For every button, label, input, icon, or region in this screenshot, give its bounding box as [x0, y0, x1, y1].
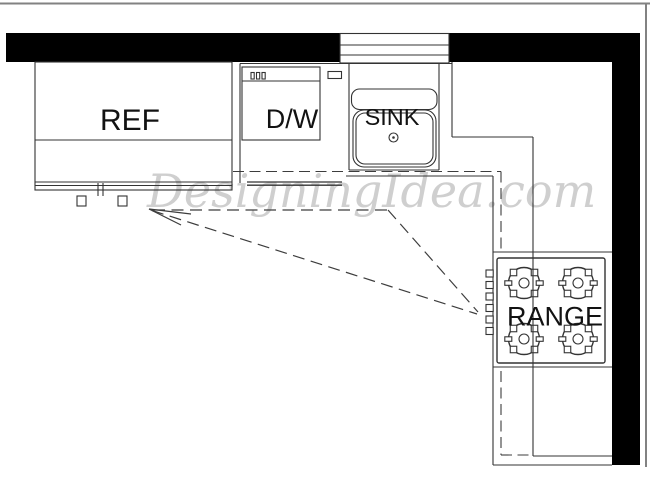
sink: SINK	[349, 64, 439, 171]
triangle-leg-diagonal	[152, 211, 477, 315]
window-frame	[340, 34, 449, 64]
counter-control-box	[328, 72, 342, 79]
wall-top-left	[6, 33, 340, 62]
window	[340, 34, 449, 64]
ref-label: REF	[100, 104, 160, 137]
range-knob	[486, 270, 493, 277]
sink-drain-dot	[392, 136, 395, 139]
wall-right	[612, 33, 640, 465]
wall-top-right	[449, 33, 640, 62]
range-knob	[486, 305, 493, 312]
floor-plan-svg: DesigningIdea.com REF D/W	[0, 0, 650, 480]
range-knob	[486, 282, 493, 289]
ref-handle	[118, 196, 127, 206]
triangle-leg-to-range	[388, 210, 478, 312]
range-label: RANGE	[507, 302, 603, 332]
dw-button	[257, 73, 260, 80]
work-triangle	[149, 209, 478, 314]
dw-button	[251, 73, 254, 80]
dw-button	[262, 73, 265, 80]
range-knob	[486, 328, 493, 335]
ref-handle	[77, 196, 86, 206]
range-knob	[486, 293, 493, 300]
burner-top-left	[505, 268, 543, 299]
kitchen-floor-plan: DesigningIdea.com REF D/W	[0, 0, 650, 480]
dw-label: D/W	[266, 104, 319, 134]
range-knob	[486, 316, 493, 323]
sink-label: SINK	[365, 104, 420, 130]
burner-top-right	[559, 268, 597, 299]
